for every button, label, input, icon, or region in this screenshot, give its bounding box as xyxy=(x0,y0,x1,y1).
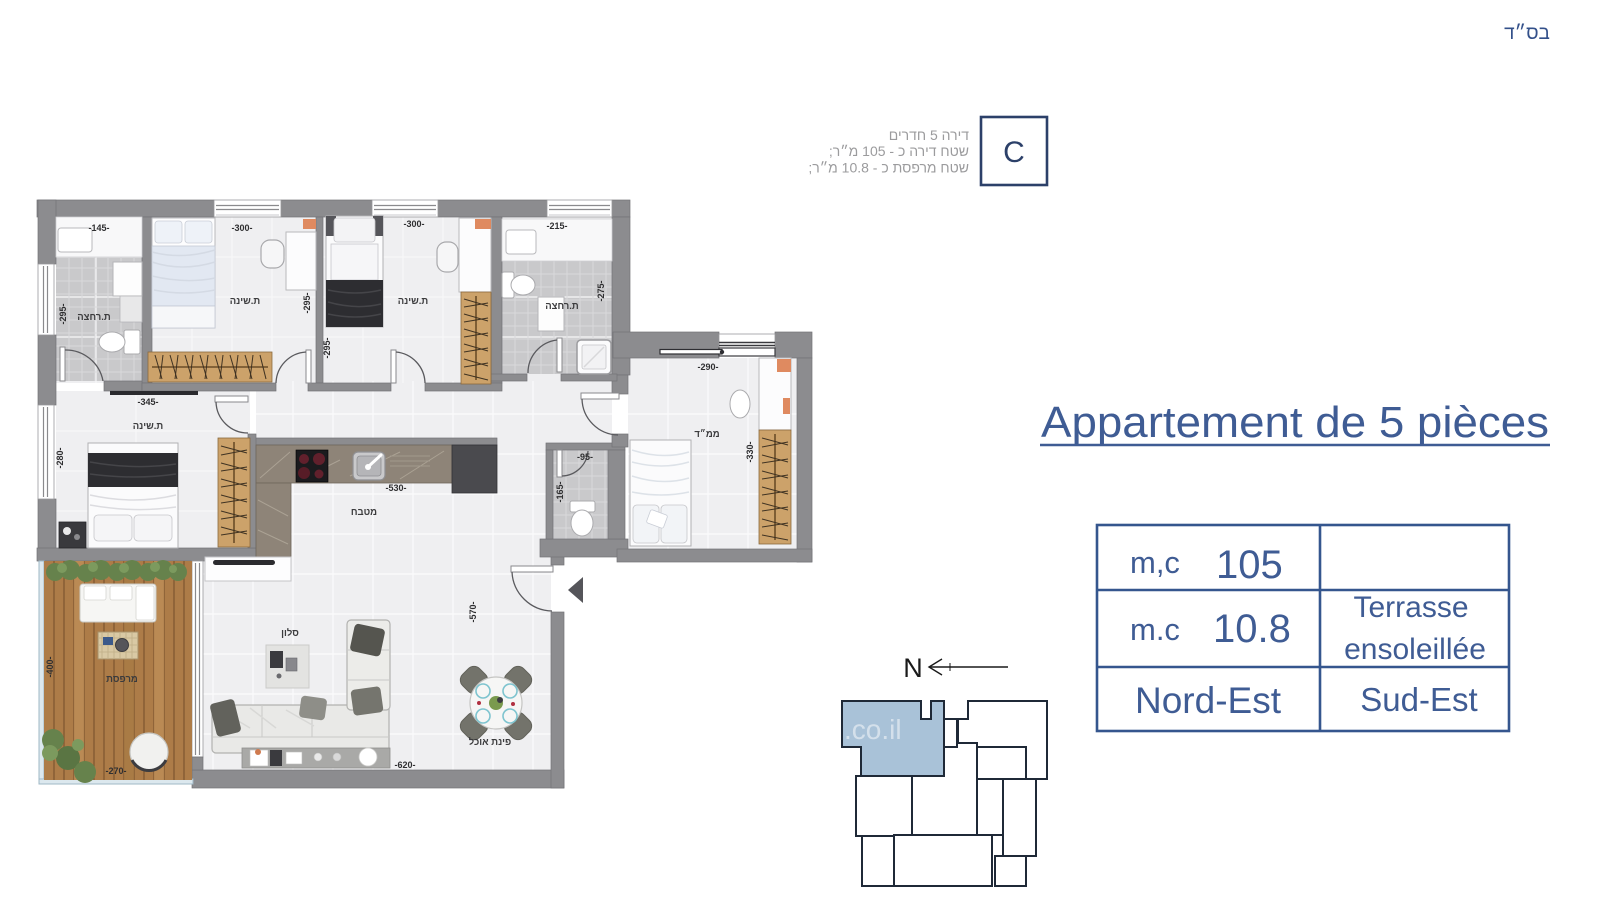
svg-text:ensoleillée: ensoleillée xyxy=(1344,633,1486,666)
svg-text:-330-: -330- xyxy=(745,441,755,462)
svg-text:m.c: m.c xyxy=(1130,612,1180,647)
svg-text:ת.שינה: ת.שינה xyxy=(133,421,164,432)
svg-text:פינת אוכל: פינת אוכל xyxy=(469,737,511,748)
svg-text:-275-: -275- xyxy=(596,280,606,301)
svg-text:Sud-Est: Sud-Est xyxy=(1360,681,1477,718)
svg-text:-165-: -165- xyxy=(555,481,565,502)
svg-text:בס״ד: בס״ד xyxy=(1504,23,1550,44)
svg-text:-295-: -295- xyxy=(302,292,312,313)
svg-text:-530-: -530- xyxy=(385,483,406,493)
svg-text:-300-: -300- xyxy=(403,219,424,229)
svg-text:ת.רחצה: ת.רחצה xyxy=(545,301,579,312)
svg-text:-400-: -400- xyxy=(45,656,55,677)
svg-text:-95-: -95- xyxy=(577,452,593,462)
svg-text:מטבח: מטבח xyxy=(351,507,377,518)
svg-text:-295-: -295- xyxy=(322,337,332,358)
svg-text:-270-: -270- xyxy=(105,766,126,776)
svg-text:ממ״ד: ממ״ד xyxy=(694,429,719,440)
svg-text:.co.il: .co.il xyxy=(844,714,902,745)
svg-text:שטח דירה כ - 105 מ״ר;: שטח דירה כ - 105 מ״ר; xyxy=(829,143,969,159)
svg-text:-280-: -280- xyxy=(55,447,65,468)
svg-text:105: 105 xyxy=(1216,543,1283,587)
svg-text:C: C xyxy=(1003,136,1025,169)
svg-text:N: N xyxy=(903,653,923,683)
svg-text:Nord-Est: Nord-Est xyxy=(1135,680,1282,721)
svg-text:-215-: -215- xyxy=(546,221,567,231)
svg-text:ת.רחצה: ת.רחצה xyxy=(77,312,111,323)
svg-text:ת.שינה: ת.שינה xyxy=(398,296,429,307)
svg-text:Appartement de 5 pièces: Appartement de 5 pièces xyxy=(1041,398,1549,447)
svg-text:-345-: -345- xyxy=(137,397,158,407)
svg-text:-620-: -620- xyxy=(394,760,415,770)
svg-text:Terrasse: Terrasse xyxy=(1353,591,1468,624)
svg-text:שטח מרפסת כ - 10.8 מ״ר;: שטח מרפסת כ - 10.8 מ״ר; xyxy=(808,160,969,176)
svg-text:-295-: -295- xyxy=(58,303,68,324)
svg-text:-145-: -145- xyxy=(88,223,109,233)
svg-text:דירה 5 חדרים: דירה 5 חדרים xyxy=(889,127,969,143)
svg-text:-570-: -570- xyxy=(468,601,478,622)
svg-text:סלון: סלון xyxy=(281,628,299,639)
svg-text:מרפסת: מרפסת xyxy=(106,674,138,685)
svg-text:10.8: 10.8 xyxy=(1213,607,1291,651)
svg-text:-290-: -290- xyxy=(697,362,718,372)
svg-text:-300-: -300- xyxy=(231,223,252,233)
svg-text:m,c: m,c xyxy=(1130,545,1180,580)
svg-text:ת.שינה: ת.שינה xyxy=(230,296,261,307)
